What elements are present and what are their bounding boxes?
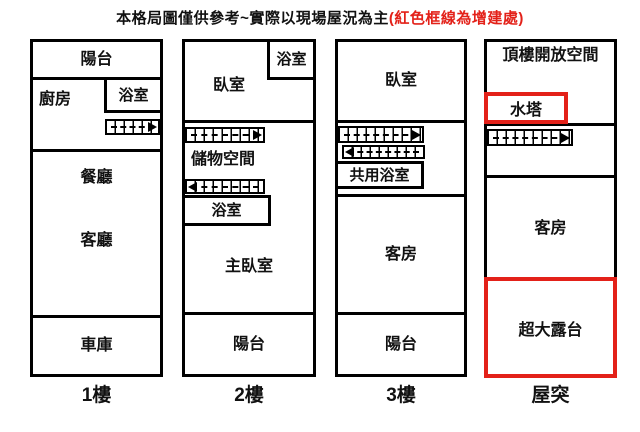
stairs-direction-arrow: [188, 182, 197, 192]
room-bathroom: 浴室: [267, 42, 313, 80]
stairs-walk-line: [348, 151, 419, 153]
floor-plan-column-1: 陽台 廚房 浴室 餐廳 客廳 車庫: [30, 39, 163, 377]
room-bathroom: 浴室: [104, 80, 160, 113]
stairs-icon: [105, 119, 160, 135]
floor-plan-canvas: 本格局圖僅供參考~實際以現場屋況為主(紅色框線為增建處) 陽台 廚房 浴室 餐廳…: [0, 0, 640, 432]
stairs-direction-arrow: [412, 130, 421, 140]
room-dining: 餐廳: [33, 170, 160, 186]
stairs-icon: [342, 145, 425, 159]
room-balcony: 陽台: [33, 42, 160, 80]
stairs-walk-line: [493, 137, 567, 139]
title-main-text: 本格局圖僅供參考~實際以現場屋況為主: [116, 10, 389, 27]
rooftop-stairs-section: [487, 126, 614, 178]
stairs-walk-line: [191, 186, 259, 188]
stairs-direction-arrow: [148, 122, 157, 132]
room-bathroom: 浴室: [185, 195, 271, 226]
stairs-walk-line: [191, 134, 259, 136]
bedroom-section: 臥室 浴室: [185, 42, 313, 123]
page-title: 本格局圖僅供參考~實際以現場屋況為主(紅色框線為增建處): [0, 7, 640, 28]
room-guest: 客房: [338, 197, 464, 315]
kitchen-section: 廚房 浴室: [33, 80, 160, 152]
room-balcony: 陽台: [185, 315, 313, 374]
storage-master-section: 儲物空間 浴室 主臥室: [185, 123, 313, 315]
rooftop-open-section: 頂樓開放空間 水塔: [487, 42, 614, 126]
stairs-direction-arrow: [253, 130, 262, 140]
room-bedroom: 臥室: [185, 78, 273, 94]
stairs-direction-arrow: [561, 133, 570, 143]
room-bedroom: 臥室: [338, 42, 464, 123]
room-guest: 客房: [487, 178, 614, 280]
room-storage: 儲物空間: [191, 152, 255, 168]
floor-plan-column-2: 臥室 浴室 儲物空間 浴室 主臥室 陽台: [182, 39, 316, 377]
stairs-walk-line: [344, 134, 418, 136]
stairs-direction-arrow: [345, 147, 354, 157]
room-open-space: 頂樓開放空間: [487, 45, 614, 66]
stairs-icon: [185, 179, 265, 194]
floor-label-1: 1樓: [30, 385, 163, 407]
floor-label-2: 2樓: [182, 385, 316, 407]
title-red-note: (紅色框線為增建處): [389, 10, 524, 27]
room-shared-bathroom: 共用浴室: [338, 161, 424, 189]
stairs-icon: [487, 129, 573, 146]
floor-plan-column-3: 臥室 共用浴室 客房 陽台: [335, 39, 467, 377]
room-master-bedroom: 主臥室: [185, 259, 313, 275]
floor-plan-column-rooftop: 頂樓開放空間 水塔 客房: [484, 39, 617, 280]
floor-label-rooftop: 屋突: [484, 385, 617, 407]
dining-living-section: 餐廳 客廳: [33, 152, 160, 318]
room-living: 客廳: [33, 233, 160, 249]
large-terrace-box: 超大露台: [484, 277, 617, 378]
floor-label-3: 3樓: [335, 385, 467, 407]
stairs-bath-section: 共用浴室: [338, 123, 464, 197]
stairs-icon: [338, 126, 424, 143]
room-balcony: 陽台: [338, 315, 464, 374]
room-kitchen: 廚房: [39, 92, 71, 108]
room-garage: 車庫: [33, 318, 160, 374]
water-tower-box: 水塔: [484, 92, 568, 124]
stairs-icon: [185, 127, 265, 143]
